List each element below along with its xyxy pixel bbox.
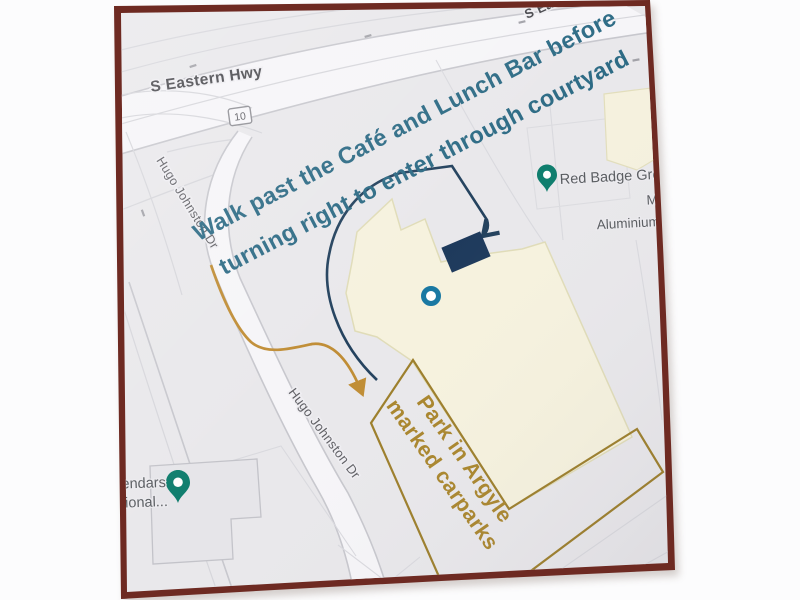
photo-shading: [121, 6, 668, 592]
annotated-map-svg: S Eastern Hwy S Eas 10 Hugo Johnston Dr …: [0, 0, 800, 600]
map-photo: S Eastern Hwy S Eas 10 Hugo Johnston Dr …: [0, 0, 800, 600]
